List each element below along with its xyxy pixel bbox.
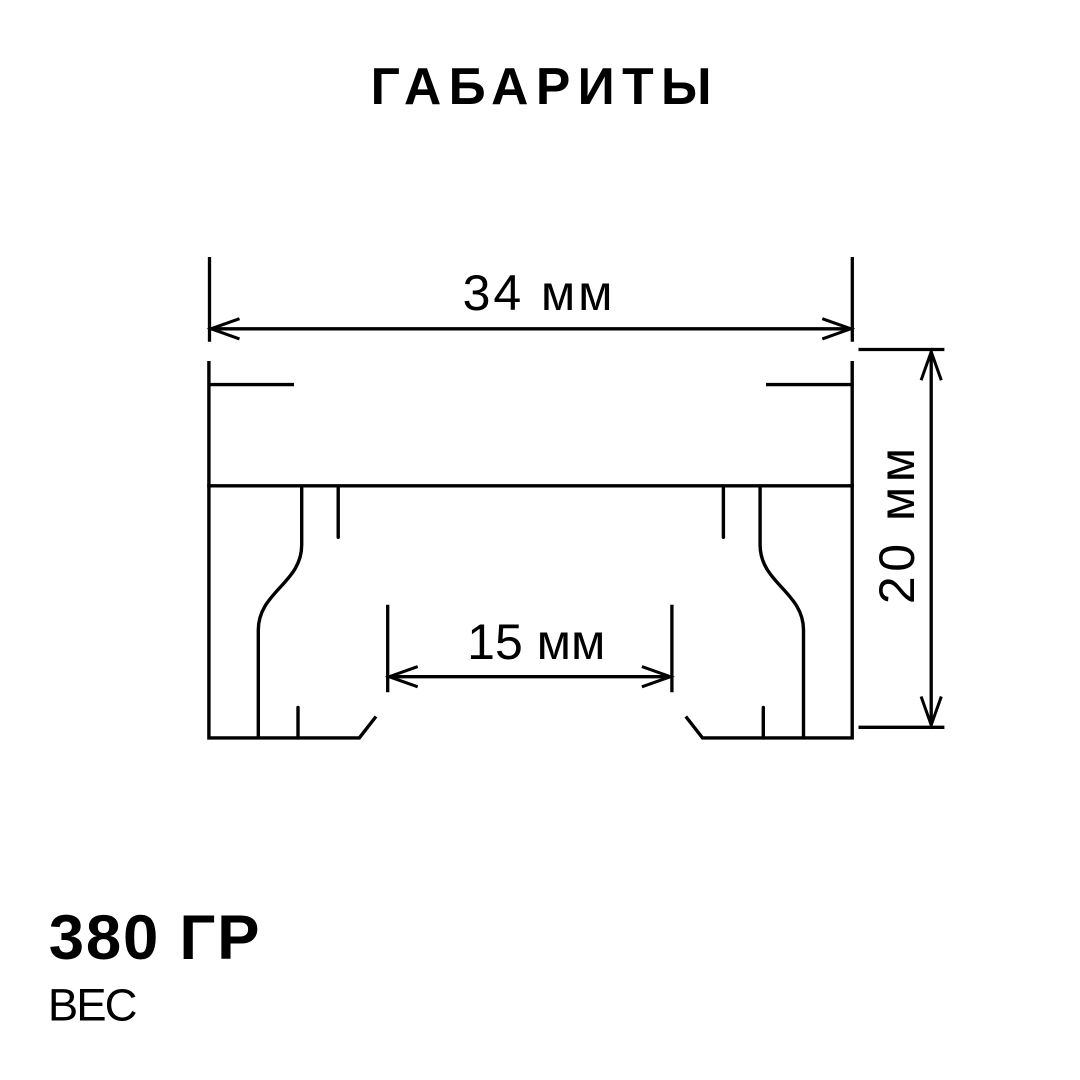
svg-text:ВЕС: ВЕС xyxy=(48,980,137,1031)
svg-text:ГАБАРИТЫ: ГАБАРИТЫ xyxy=(371,57,719,115)
svg-text:15 мм: 15 мм xyxy=(467,614,605,670)
svg-text:380 ГР: 380 ГР xyxy=(49,903,262,973)
svg-text:34 мм: 34 мм xyxy=(463,265,616,321)
svg-text:20 мм: 20 мм xyxy=(869,443,925,604)
